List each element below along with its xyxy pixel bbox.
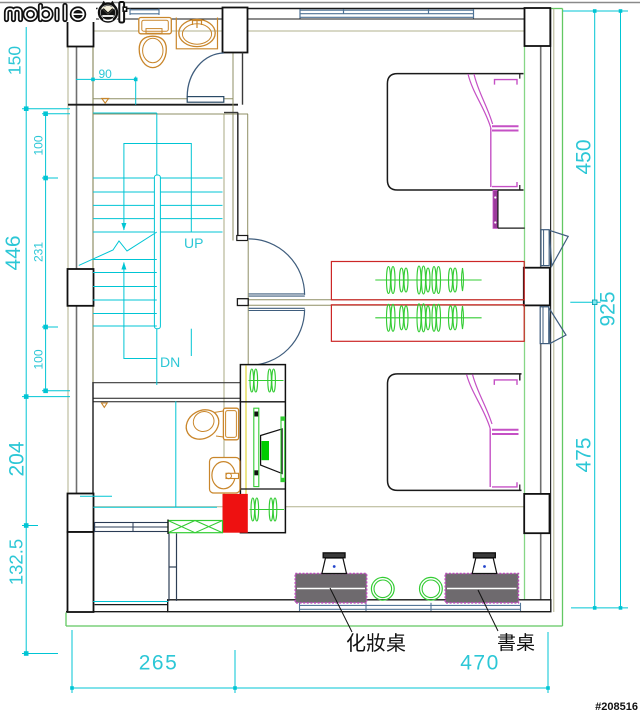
svg-text:450: 450	[573, 139, 596, 174]
svg-text:470: 470	[460, 652, 500, 675]
svg-text:150: 150	[5, 46, 25, 75]
svg-text:132.5: 132.5	[6, 539, 27, 585]
svg-text:90: 90	[99, 67, 113, 81]
svg-text:100: 100	[32, 349, 46, 369]
svg-text:UP: UP	[184, 235, 203, 251]
svg-text:475: 475	[573, 437, 596, 472]
svg-text:446: 446	[2, 235, 25, 270]
svg-text:#208516: #208516	[595, 701, 638, 711]
svg-text:231: 231	[32, 242, 46, 262]
svg-text:化妝桌: 化妝桌	[346, 632, 406, 655]
svg-text:書桌: 書桌	[497, 632, 535, 654]
svg-text:100: 100	[32, 135, 46, 155]
svg-text:DN: DN	[160, 354, 180, 370]
svg-text:204: 204	[6, 441, 29, 476]
svg-text:925: 925	[597, 291, 620, 326]
svg-text:265: 265	[139, 652, 179, 675]
